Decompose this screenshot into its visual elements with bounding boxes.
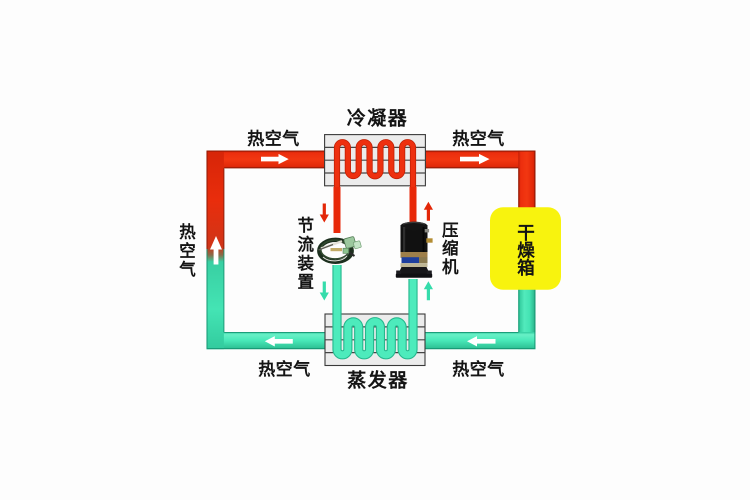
svg-text:箱: 箱 <box>517 258 535 278</box>
svg-text:装: 装 <box>298 253 315 273</box>
svg-text:机: 机 <box>442 257 459 277</box>
svg-text:流: 流 <box>298 234 315 254</box>
svg-text:压: 压 <box>442 221 459 240</box>
svg-text:热空气: 热空气 <box>258 359 311 379</box>
svg-text:热空气: 热空气 <box>247 129 300 149</box>
svg-text:蒸发器: 蒸发器 <box>347 369 409 392</box>
svg-text:热空气: 热空气 <box>452 128 505 148</box>
svg-text:冷凝器: 冷凝器 <box>347 107 409 130</box>
svg-text:置: 置 <box>298 272 315 291</box>
svg-text:缩: 缩 <box>442 238 459 258</box>
svg-text:节: 节 <box>298 215 315 235</box>
svg-text:气: 气 <box>178 259 196 279</box>
svg-text:热: 热 <box>179 222 196 242</box>
svg-text:空: 空 <box>179 240 196 260</box>
svg-text:热空气: 热空气 <box>452 359 505 379</box>
